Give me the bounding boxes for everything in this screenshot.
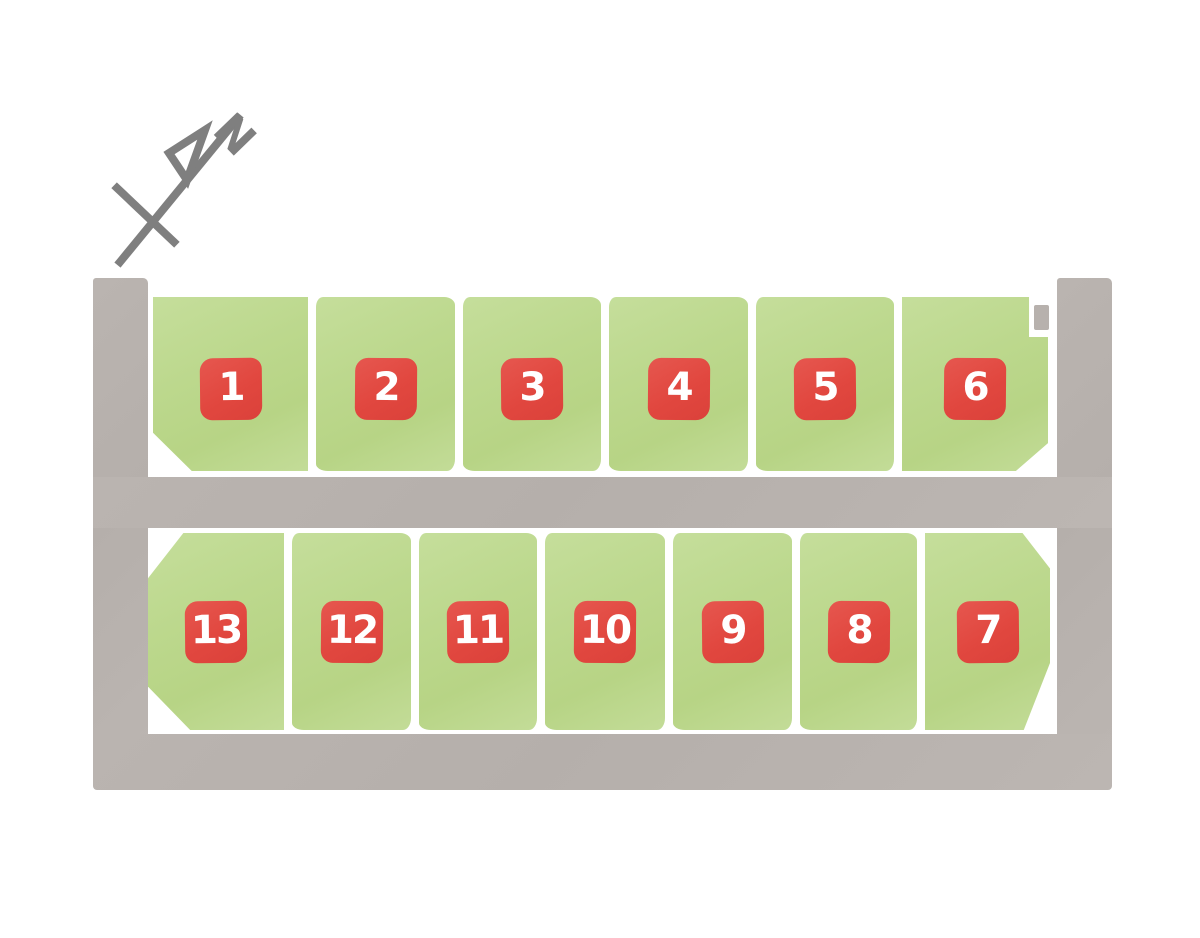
lot-marker-1: 1 <box>199 357 262 420</box>
lot-parcel-10: 10 <box>545 533 665 730</box>
lot-number: 2 <box>373 367 399 409</box>
lot-marker-5: 5 <box>794 357 857 420</box>
road-bottom <box>93 734 1112 790</box>
lot-parcel-13: 13 <box>148 533 284 730</box>
lot-number: 8 <box>846 610 872 652</box>
lot-marker-8: 8 <box>827 600 890 663</box>
lot-marker-13: 13 <box>185 600 248 663</box>
lot-number: 9 <box>720 610 746 652</box>
lot-parcel-1: 1 <box>153 297 308 471</box>
lot-marker-9: 9 <box>701 600 764 663</box>
lot-marker-6: 6 <box>944 357 1007 420</box>
lot-marker-11: 11 <box>447 600 510 663</box>
lot-parcel-12: 12 <box>292 533 411 730</box>
utility-notch <box>1034 305 1049 330</box>
north-label: N <box>203 104 265 166</box>
road-right <box>1057 278 1112 790</box>
lot-parcel-9: 9 <box>673 533 792 730</box>
lot-parcel-8: 8 <box>800 533 917 730</box>
lot-marker-12: 12 <box>320 600 383 663</box>
lot-marker-10: 10 <box>574 600 637 663</box>
lot-number: 7 <box>975 610 1001 652</box>
lot-parcel-3: 3 <box>463 297 601 471</box>
lot-parcel-6: 6 <box>902 297 1048 471</box>
lot-marker-3: 3 <box>501 357 564 420</box>
lot-marker-2: 2 <box>354 357 417 420</box>
lot-parcel-4: 4 <box>609 297 748 471</box>
lot-parcel-11: 11 <box>419 533 537 730</box>
lot-number: 4 <box>666 367 692 409</box>
road-middle <box>93 477 1112 528</box>
lot-number: 12 <box>326 610 377 652</box>
lot-number: 10 <box>580 610 631 652</box>
lot-parcel-5: 5 <box>756 297 894 471</box>
north-arrow-icon: N <box>95 80 265 280</box>
lot-number: 11 <box>453 610 504 653</box>
site-plan-canvas: N 1 2 3 4 5 <box>0 0 1200 938</box>
lot-marker-4: 4 <box>647 357 710 420</box>
road-left <box>93 278 148 790</box>
north-arrow-head <box>169 130 205 180</box>
lot-parcel-2: 2 <box>316 297 455 471</box>
lot-number: 6 <box>962 367 988 409</box>
lot-number: 3 <box>519 367 545 409</box>
lot-number: 1 <box>218 367 244 409</box>
lot-marker-7: 7 <box>956 600 1019 663</box>
lot-number: 5 <box>812 367 838 409</box>
lot-number: 13 <box>191 610 242 653</box>
lot-parcel-7: 7 <box>925 533 1050 730</box>
